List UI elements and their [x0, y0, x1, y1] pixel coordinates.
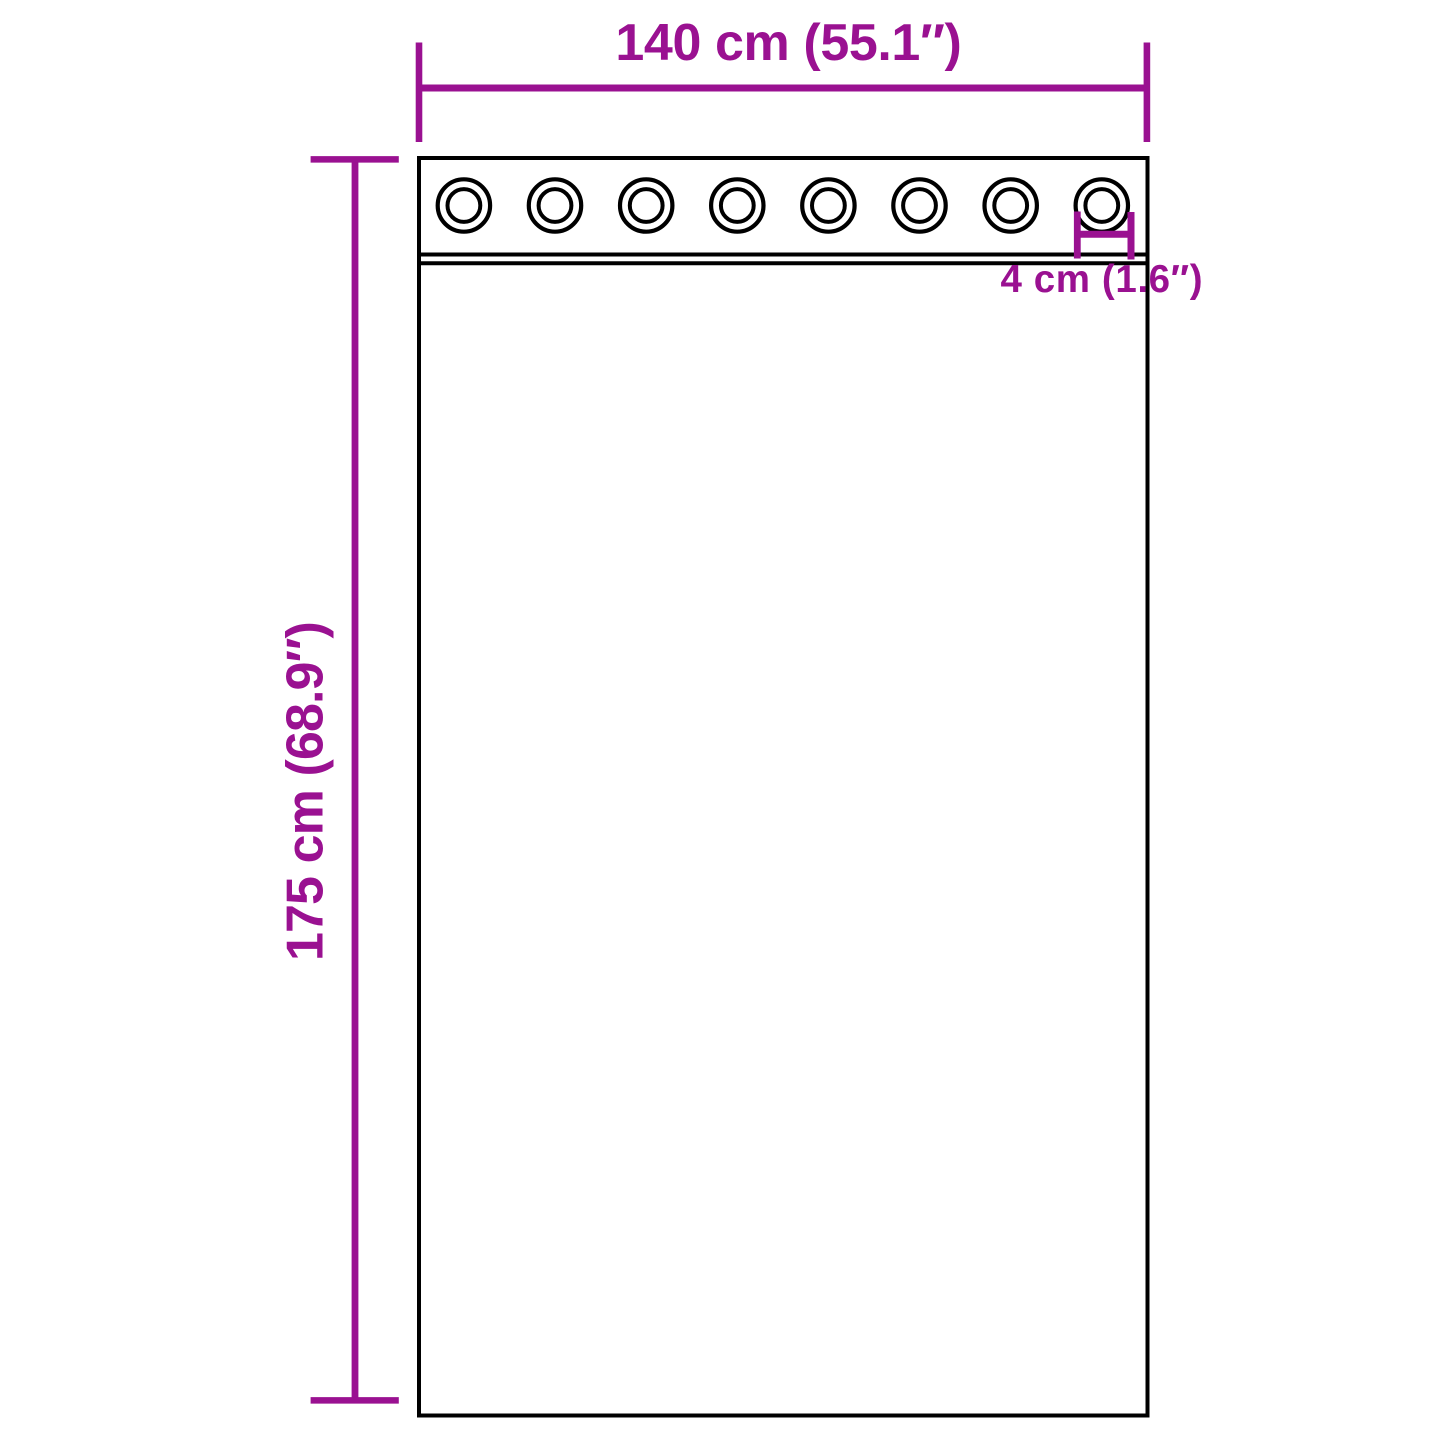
svg-text:4 cm (1.6″): 4 cm (1.6″)	[1000, 258, 1203, 301]
svg-text:175 cm (68.9″): 175 cm (68.9″)	[277, 622, 335, 961]
svg-text:140 cm (55.1″): 140 cm (55.1″)	[615, 14, 961, 72]
